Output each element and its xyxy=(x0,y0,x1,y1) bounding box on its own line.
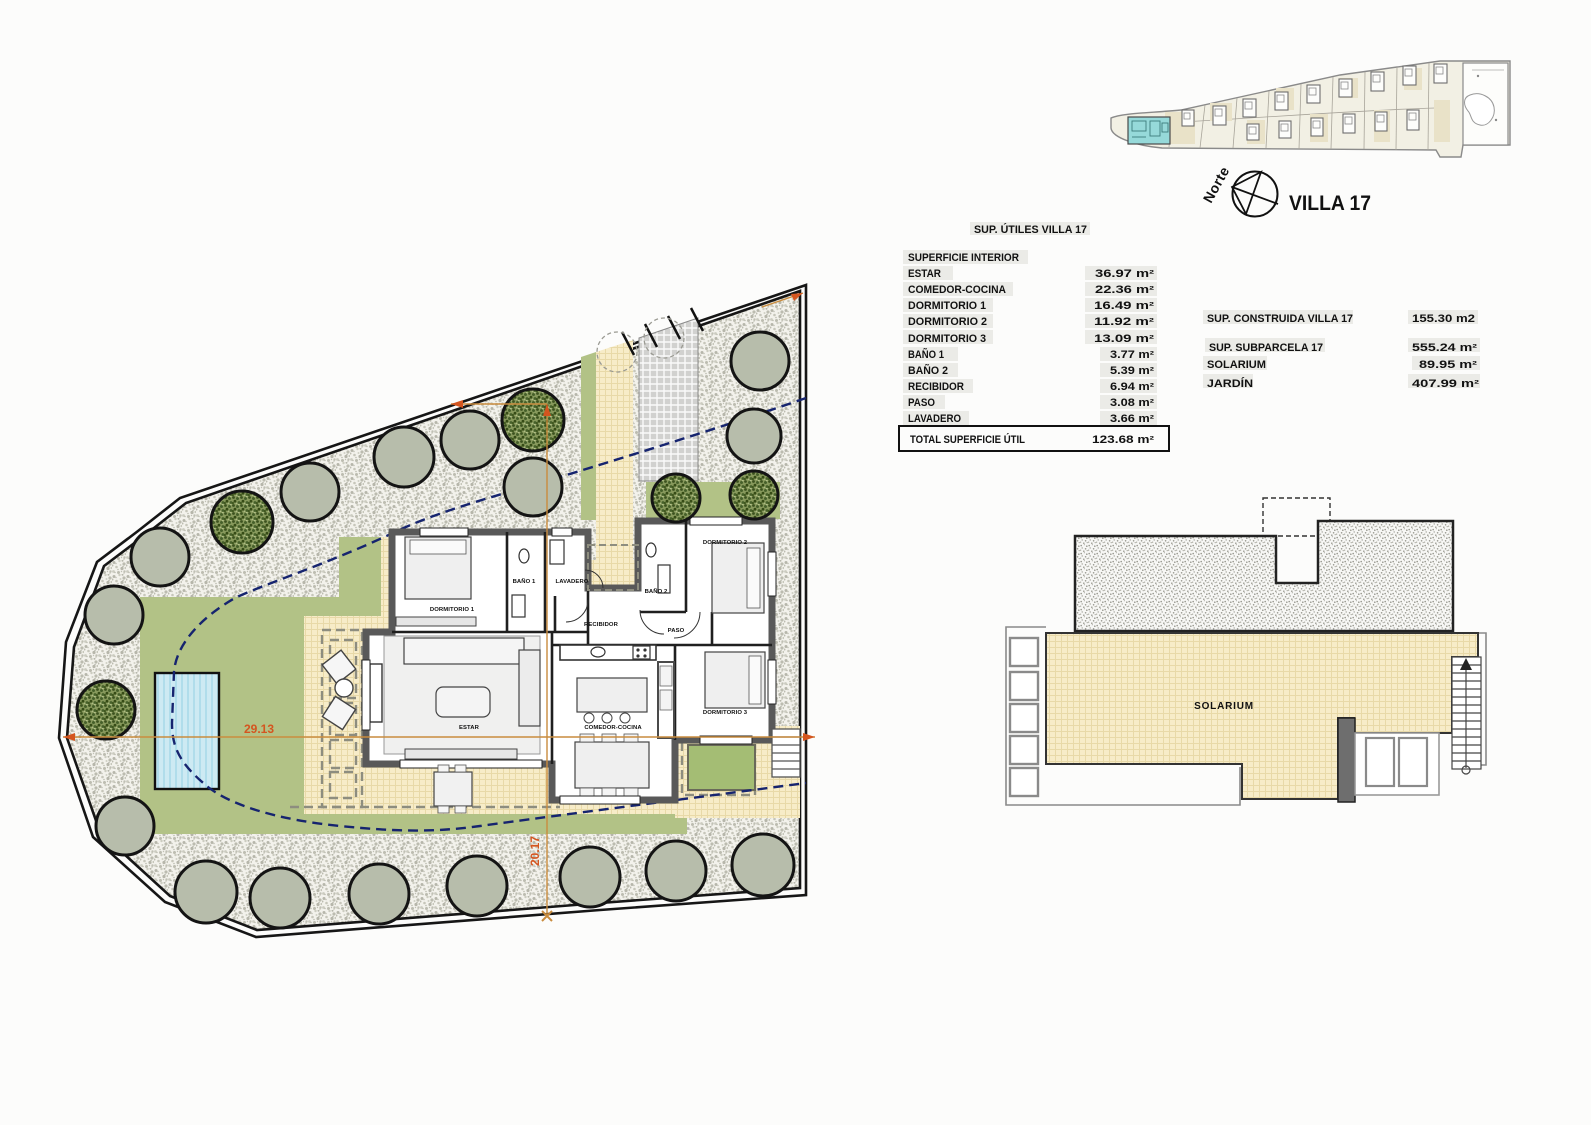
svg-text:22.36 m²: 22.36 m² xyxy=(1095,284,1155,296)
svg-text:3.08 m²: 3.08 m² xyxy=(1110,397,1155,409)
svg-text:RECIBIDOR: RECIBIDOR xyxy=(908,381,964,393)
svg-text:29.13: 29.13 xyxy=(244,722,274,736)
svg-text:COMEDOR-COCINA: COMEDOR-COCINA xyxy=(584,725,642,731)
svg-text:155.30 m2: 155.30 m2 xyxy=(1412,313,1475,325)
svg-text:20.17: 20.17 xyxy=(528,836,542,866)
svg-text:DORMITORIO 2: DORMITORIO 2 xyxy=(703,540,748,546)
svg-text:ESTAR: ESTAR xyxy=(459,725,480,731)
svg-text:LAVADERO: LAVADERO xyxy=(908,413,961,425)
svg-text:BAÑO 2: BAÑO 2 xyxy=(908,364,948,377)
svg-text:16.49 m²: 16.49 m² xyxy=(1094,300,1155,312)
svg-text:RECIBIDOR: RECIBIDOR xyxy=(584,622,619,628)
svg-text:PASO: PASO xyxy=(668,628,685,634)
svg-text:DORMITORIO 3: DORMITORIO 3 xyxy=(703,710,748,716)
svg-text:89.95 m²: 89.95 m² xyxy=(1419,359,1478,371)
svg-text:5.39 m²: 5.39 m² xyxy=(1110,365,1155,377)
svg-text:SUP. CONSTRUIDA VILLA 17: SUP. CONSTRUIDA VILLA 17 xyxy=(1207,313,1353,325)
svg-text:DORMITORIO 2: DORMITORIO 2 xyxy=(908,316,987,328)
svg-text:6.94 m²: 6.94 m² xyxy=(1110,381,1155,393)
svg-text:SUPERFICIE INTERIOR: SUPERFICIE INTERIOR xyxy=(908,252,1019,264)
svg-text:LAVADERO: LAVADERO xyxy=(556,579,589,585)
svg-text:BAÑO 1: BAÑO 1 xyxy=(908,348,944,361)
svg-text:JARDÍN: JARDÍN xyxy=(1207,377,1253,390)
svg-text:555.24 m²: 555.24 m² xyxy=(1412,342,1478,354)
svg-text:3.66 m²: 3.66 m² xyxy=(1110,413,1155,425)
svg-text:407.99 m²: 407.99 m² xyxy=(1412,378,1480,390)
svg-text:DORMITORIO 1: DORMITORIO 1 xyxy=(908,300,986,312)
svg-text:COMEDOR-COCINA: COMEDOR-COCINA xyxy=(908,284,1006,296)
svg-text:3.77 m²: 3.77 m² xyxy=(1110,349,1155,361)
svg-text:ESTAR: ESTAR xyxy=(908,268,941,280)
svg-text:36.97 m²: 36.97 m² xyxy=(1095,268,1155,280)
svg-text:SOLARIUM: SOLARIUM xyxy=(1207,359,1266,371)
svg-text:VILLA 17: VILLA 17 xyxy=(1289,192,1371,215)
svg-text:TOTAL SUPERFICIE ÚTIL: TOTAL SUPERFICIE ÚTIL xyxy=(910,433,1025,446)
svg-text:SOLARIUM: SOLARIUM xyxy=(1194,701,1254,712)
svg-text:SUP. SUBPARCELA 17: SUP. SUBPARCELA 17 xyxy=(1209,342,1323,354)
svg-text:BAÑO 2: BAÑO 2 xyxy=(645,588,668,595)
svg-text:SUP. ÚTILES VILLA 17: SUP. ÚTILES VILLA 17 xyxy=(974,223,1087,236)
svg-text:11.92 m²: 11.92 m² xyxy=(1094,316,1155,328)
svg-text:PASO: PASO xyxy=(908,397,935,409)
svg-text:DORMITORIO 3: DORMITORIO 3 xyxy=(908,333,986,345)
svg-text:123.68 m²: 123.68 m² xyxy=(1092,434,1155,446)
svg-text:BAÑO 1: BAÑO 1 xyxy=(513,578,536,585)
svg-text:13.09 m²: 13.09 m² xyxy=(1094,333,1155,345)
svg-text:DORMITORIO 1: DORMITORIO 1 xyxy=(430,607,475,613)
